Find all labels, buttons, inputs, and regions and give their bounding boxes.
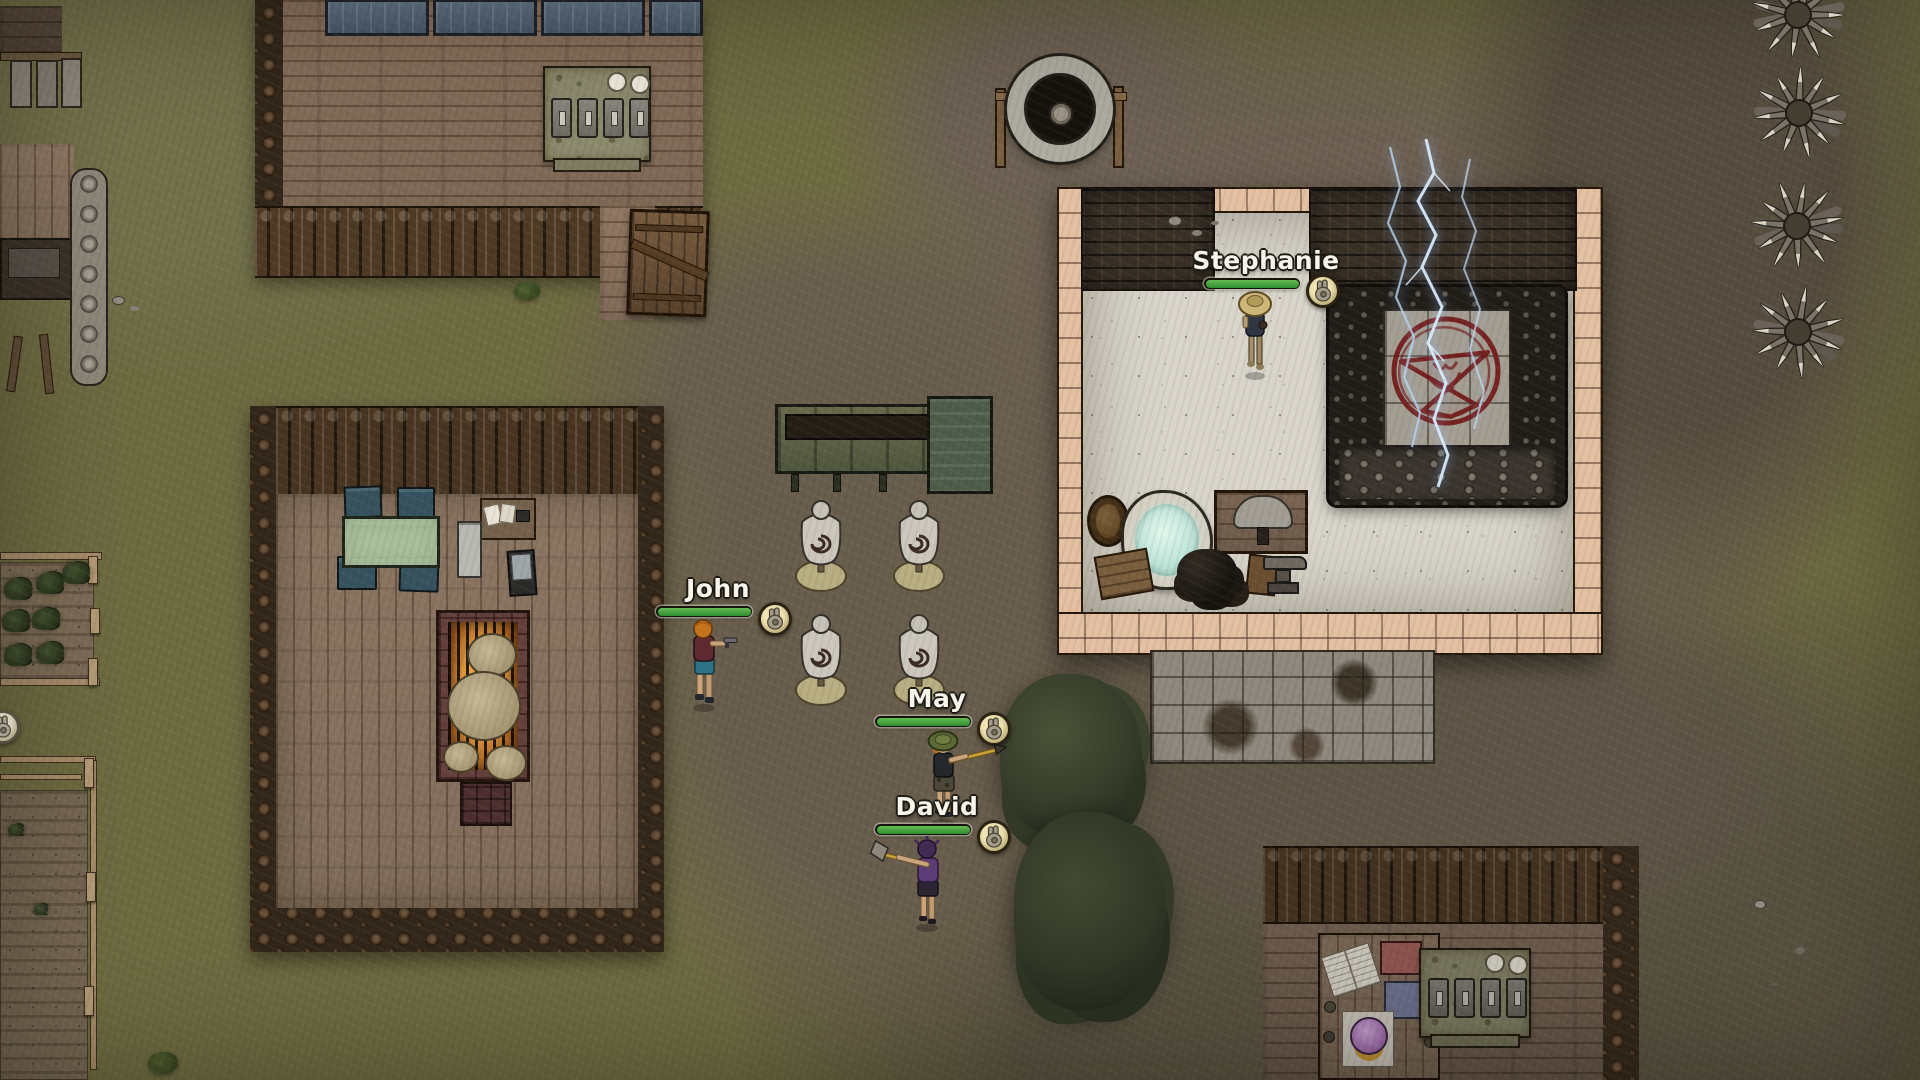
hanging-plate [10, 60, 32, 108]
hanging-plate [61, 58, 82, 108]
machine-belt [785, 414, 939, 440]
fire-pit[interactable] [436, 610, 530, 782]
anvil-base [1267, 582, 1299, 594]
fence-rail [0, 552, 102, 560]
wooden-house [255, 0, 703, 278]
grind-stone [467, 633, 517, 677]
stove-cell [551, 98, 572, 138]
jar [1324, 1001, 1336, 1013]
character-sprite[interactable] [1233, 284, 1277, 388]
crop-plant [62, 562, 90, 584]
fence-post [88, 658, 98, 686]
brick-wall-bottom [1057, 612, 1603, 655]
palisade-wall-tall [276, 406, 638, 498]
fist-glyph [764, 607, 786, 631]
stove-shelf [1430, 1034, 1521, 1048]
fence-rail [90, 760, 97, 1070]
health-bar [875, 716, 971, 727]
machine-body [0, 6, 62, 56]
garden-plot[interactable] [0, 550, 112, 694]
crop-plant [32, 608, 60, 630]
grindstone-table[interactable] [1214, 490, 1308, 554]
stove-cell [1506, 978, 1527, 1018]
solar-panel[interactable] [541, 0, 645, 36]
potion-flask [1350, 1017, 1388, 1055]
plate [607, 72, 627, 92]
fence-post [84, 986, 94, 1016]
alchemy-cabin [1263, 836, 1655, 1080]
hanging-rack-machine[interactable] [0, 0, 82, 112]
lightning-effect [1330, 139, 1530, 559]
chair[interactable] [397, 487, 435, 519]
brick-wall-left [1057, 187, 1083, 655]
health-fill [877, 718, 970, 726]
stove-cell [1454, 978, 1475, 1018]
jar [1323, 1031, 1335, 1043]
character-sprite[interactable] [680, 616, 744, 720]
plate [1485, 953, 1505, 973]
stove-cell [1480, 978, 1501, 1018]
character-name-label: May [857, 684, 1017, 713]
fire-pit-chimney [460, 782, 512, 826]
crop-sprout [8, 824, 24, 836]
anvil[interactable] [1261, 552, 1309, 598]
anvil-top [1263, 556, 1307, 570]
log-wall-right [1603, 846, 1639, 1080]
solar-panel[interactable] [325, 0, 429, 36]
grind-stone [447, 671, 521, 741]
stone-patio [1150, 650, 1435, 764]
fist-icon[interactable] [1306, 274, 1340, 308]
paper [499, 503, 516, 524]
mannequin-figure [792, 612, 850, 708]
stove-shelf [553, 158, 640, 172]
gate-brace [635, 224, 703, 233]
grind-stone [443, 741, 479, 773]
stove-cell [1428, 978, 1449, 1018]
mannequin[interactable] [890, 498, 948, 594]
crop-plant [36, 572, 64, 594]
garden-plot[interactable] [0, 754, 106, 1080]
stove-workbench[interactable] [543, 66, 651, 162]
stone-pillar [70, 168, 108, 386]
fist-icon[interactable] [758, 602, 792, 636]
fist-glyph [983, 825, 1005, 849]
health-fill [658, 608, 751, 616]
hanging-plate [36, 60, 58, 108]
pebbles [1168, 216, 1182, 226]
chair[interactable] [343, 485, 382, 518]
grind-stone [485, 745, 527, 781]
plate [1508, 955, 1528, 975]
fist-glyph [0, 715, 14, 739]
mannequin[interactable] [792, 498, 850, 594]
solar-panel[interactable] [433, 0, 537, 36]
grindstone-slot [1257, 527, 1269, 545]
character-name-label: John [638, 574, 798, 603]
machine-leg [833, 474, 841, 492]
palisade-wall [255, 206, 600, 278]
tool-bench[interactable] [1094, 548, 1155, 601]
red-box [1380, 941, 1422, 975]
crop-plant [4, 644, 32, 666]
wooden-gate[interactable] [626, 209, 710, 318]
conveyor-machine[interactable] [775, 396, 993, 496]
fence-post [90, 608, 100, 634]
tree-canopy [1000, 674, 1142, 836]
stove-workbench[interactable] [1419, 948, 1531, 1038]
game-viewport: Stephanie John [0, 0, 1920, 1080]
left-shed[interactable] [0, 138, 110, 390]
fist-icon[interactable] [977, 820, 1011, 854]
character-sprite[interactable] [869, 836, 977, 940]
side-table-top [511, 553, 533, 580]
gate-brace [633, 293, 701, 302]
character-name-label: Stephanie [1186, 246, 1346, 275]
crop-plant [4, 578, 32, 600]
fist-glyph [1312, 279, 1334, 303]
stove-cell [603, 98, 624, 138]
character-name-label: David [857, 792, 1017, 821]
crop-plant [36, 642, 64, 664]
character-david: David [857, 796, 1017, 956]
fence-post [84, 758, 94, 788]
palisade-wall [1263, 846, 1607, 924]
shed-leg [39, 334, 54, 395]
desk[interactable] [480, 498, 536, 540]
crafting-hall [250, 406, 664, 952]
shed-roof-planks [0, 144, 74, 240]
mannequin-figure [792, 498, 850, 594]
open-book [1321, 942, 1382, 997]
fence-rail [0, 756, 96, 763]
character-john: John [638, 578, 798, 738]
fence-rail [0, 774, 82, 780]
fence-rail [0, 678, 100, 686]
tree-canopy [1014, 812, 1166, 1010]
side-table[interactable] [506, 549, 537, 597]
cabinet[interactable] [457, 521, 482, 578]
pebbles [112, 296, 125, 305]
shed-panel [8, 248, 60, 278]
coal-pile[interactable] [1177, 549, 1237, 599]
health-fill [877, 826, 970, 834]
mannequin-figure [890, 498, 948, 594]
plate [630, 74, 650, 94]
stove-cell [629, 98, 650, 138]
shed-leg [6, 336, 23, 393]
brick-wall-right [1573, 187, 1603, 655]
machine-unit [927, 396, 993, 494]
health-bar [875, 824, 971, 835]
crop-plant [2, 610, 30, 632]
fence-post [86, 872, 96, 902]
machine-leg [879, 474, 887, 492]
machine-leg [791, 474, 799, 492]
water-well[interactable] [995, 50, 1127, 172]
dining-table[interactable] [342, 516, 440, 568]
spike-traps[interactable] [1735, 0, 1905, 390]
pebbles [1754, 900, 1766, 909]
fist-icon[interactable] [0, 710, 20, 744]
grindstone-wheel [1233, 495, 1293, 529]
small-bush [514, 282, 540, 300]
solar-panel[interactable] [649, 0, 703, 36]
character-stephanie: Stephanie [1186, 250, 1346, 410]
well-bucket [1049, 102, 1073, 126]
mannequin[interactable] [792, 612, 850, 708]
stove-cell [577, 98, 598, 138]
small-bush [148, 1052, 178, 1074]
typewriter [516, 510, 530, 522]
crop-sprout [34, 904, 48, 915]
anvil-waist [1275, 569, 1291, 583]
